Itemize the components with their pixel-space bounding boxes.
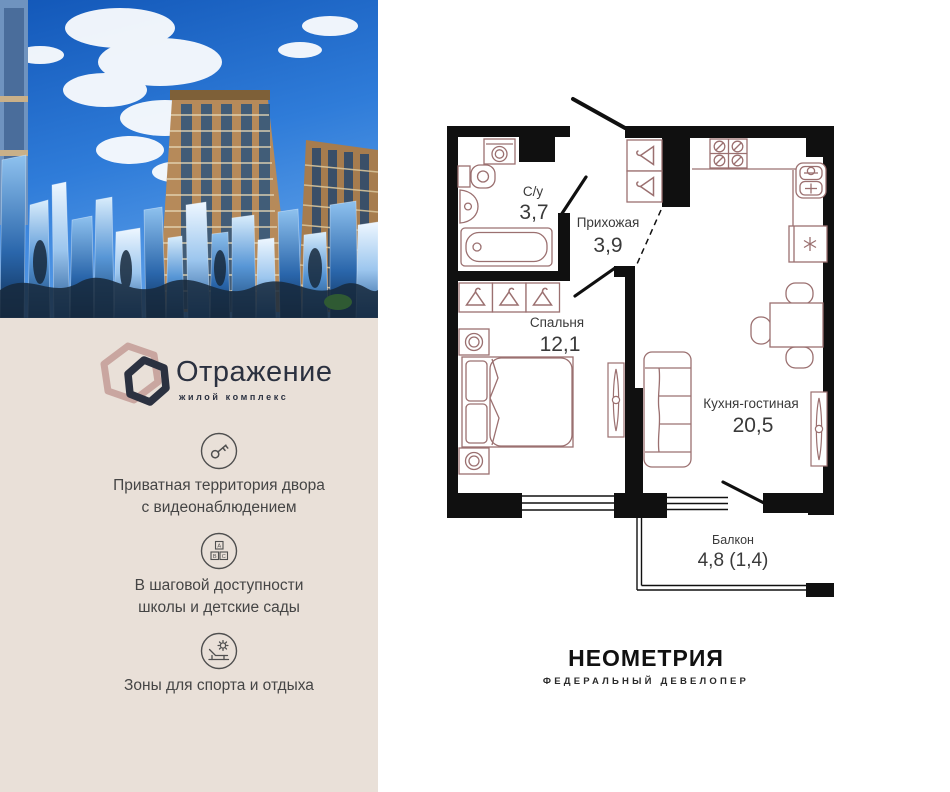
feature-line: Зоны для спорта и отдыха: [34, 675, 404, 697]
fridge: [789, 226, 827, 262]
living-window: [667, 498, 728, 510]
room-label-hallway: Прихожая: [577, 215, 640, 230]
key-icon: [200, 432, 238, 470]
kitchen-sink: [796, 163, 826, 198]
abc-blocks-icon: А В С: [200, 532, 238, 570]
hexagon-logo-icon: [100, 342, 180, 414]
feature-private-territory: Приватная территория двора с видеонаблюд…: [34, 432, 404, 519]
svg-text:А: А: [217, 543, 221, 549]
room-area-bedroom: 12,1: [540, 333, 581, 356]
developer-tagline: ФЕДЕРАЛЬНЫЙ ДЕВЕЛОПЕР: [538, 676, 754, 687]
kitchen-counter: [692, 169, 796, 226]
developer-logo: НЕОМЕТРИЯ ФЕДЕРАЛЬНЫЙ ДЕВЕЛОПЕР: [538, 645, 754, 687]
bed: [462, 357, 573, 447]
bedroom-window: [522, 496, 614, 510]
entrance-door: [573, 99, 625, 128]
room-label-bedroom: Спальня: [530, 315, 584, 330]
svg-text:В: В: [213, 554, 217, 560]
feature-line: школы и детские сады: [34, 597, 404, 619]
washing-machine: [484, 139, 515, 164]
bathroom-sink: [460, 190, 478, 223]
room-label-balcony: Балкон: [712, 533, 754, 547]
hall-wardrobe: [627, 140, 662, 202]
room-area-balcony: 4,8 (1,4): [698, 550, 769, 571]
balcony-door: [723, 482, 764, 503]
real-estate-card: Отражение жилой комплекс Приватная терри…: [0, 0, 950, 792]
bathtub: [461, 228, 552, 266]
lounge-sun-icon: [200, 632, 238, 670]
nightstand: [459, 448, 489, 474]
feature-line: Приватная территория двора: [34, 475, 404, 497]
feature-schools-nearby: А В С В шаговой доступности школы и детс…: [34, 532, 404, 619]
nightstand: [459, 329, 489, 355]
bathroom-door: [561, 177, 586, 215]
feature-line: В шаговой доступности: [34, 575, 404, 597]
stove: [710, 139, 747, 168]
room-area-kitchen-living: 20,5: [733, 414, 774, 437]
room-label-bathroom: С/у: [523, 184, 544, 199]
living-radiator: [811, 392, 827, 466]
feature-line: с видеонаблюдением: [34, 497, 404, 519]
tree: [324, 294, 352, 310]
wardrobe-row: [459, 283, 560, 312]
room-label-kitchen-living: Кухня-гостиная: [703, 396, 799, 411]
zone-divider-dashed: [637, 210, 661, 264]
room-area-hallway: 3,9: [593, 234, 622, 257]
brand-panel: Отражение жилой комплекс Приватная терри…: [0, 318, 378, 792]
bedroom-door: [575, 268, 615, 296]
room-area-bathroom: 3,7: [519, 201, 548, 224]
toilet: [458, 165, 495, 188]
building-photo: [0, 0, 378, 318]
features-list: Приватная территория двора с видеонаблюд…: [34, 432, 404, 710]
svg-text:С: С: [222, 554, 226, 560]
developer-name: НЕОМЕТРИЯ: [538, 645, 754, 672]
brand-tagline: жилой комплекс: [179, 392, 288, 402]
feature-sport-recreation: Зоны для спорта и отдыха: [34, 632, 404, 697]
dining-table: [751, 283, 823, 368]
bedroom-radiator: [608, 363, 624, 437]
sofa: [644, 352, 691, 467]
brand-name: Отражение: [176, 356, 332, 389]
floor-plan: С/у 3,7 Прихожая 3,9 Спальня 12,1 Кухня-…: [440, 90, 850, 605]
